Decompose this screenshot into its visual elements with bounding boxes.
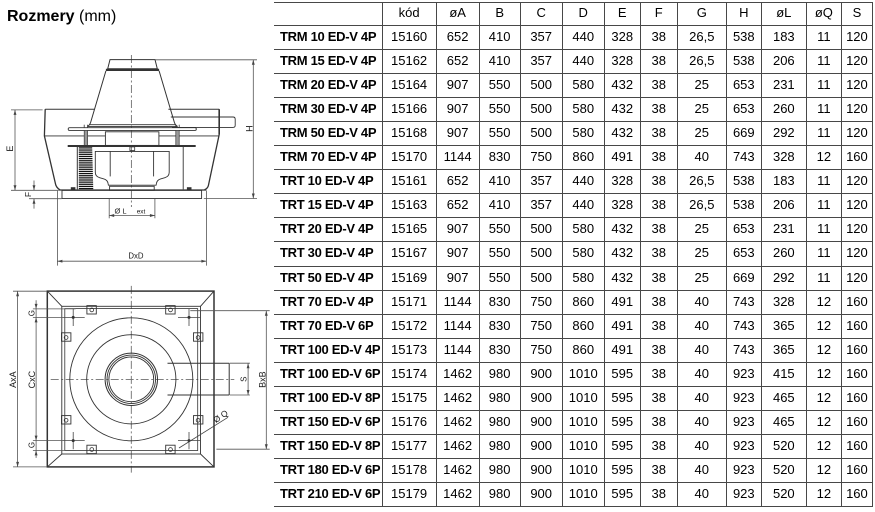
svg-text:BxB: BxB — [258, 371, 268, 388]
svg-text:S: S — [239, 377, 248, 382]
svg-text:Ø L: Ø L — [114, 206, 126, 215]
svg-text:ext: ext — [137, 209, 146, 216]
svg-text:G: G — [28, 310, 37, 316]
svg-text:F: F — [23, 192, 33, 197]
svg-text:AxA: AxA — [8, 371, 18, 388]
svg-text:E: E — [5, 146, 15, 152]
svg-text:DxD: DxD — [128, 251, 144, 260]
svg-text:H: H — [244, 125, 254, 132]
svg-text:CxC: CxC — [27, 370, 37, 388]
svg-text:G: G — [28, 442, 37, 448]
